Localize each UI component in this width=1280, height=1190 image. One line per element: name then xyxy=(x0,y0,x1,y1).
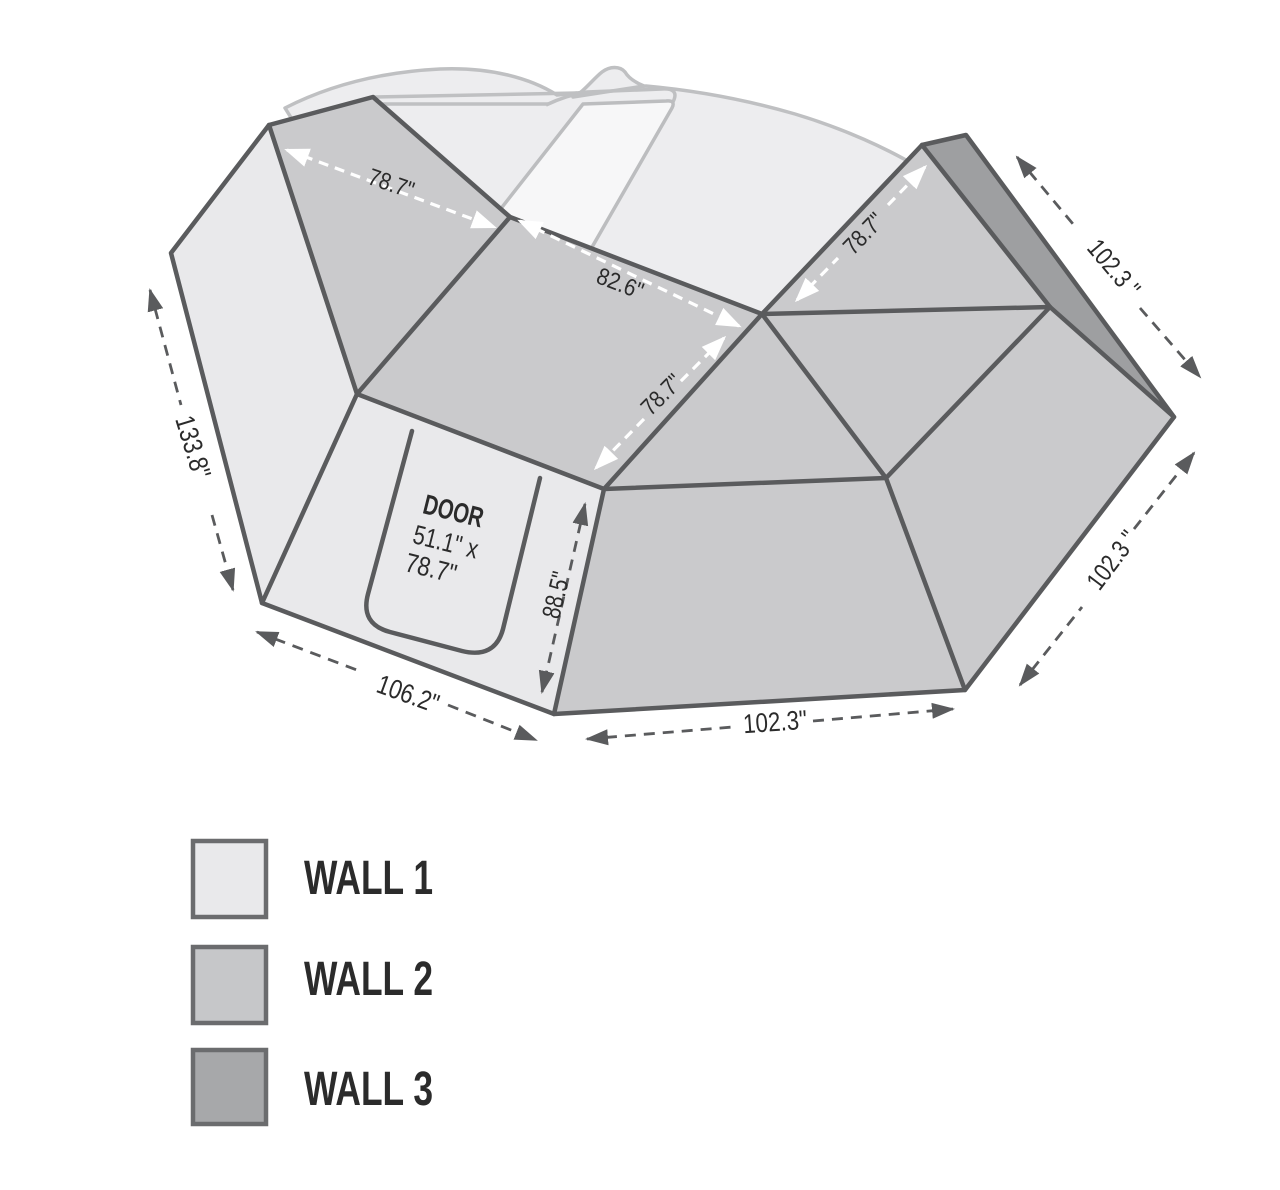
svg-text:102.3": 102.3" xyxy=(742,705,808,739)
svg-text:WALL 2: WALL 2 xyxy=(304,953,433,1006)
svg-text:WALL 3: WALL 3 xyxy=(304,1063,433,1116)
svg-text:WALL 1: WALL 1 xyxy=(304,852,433,905)
